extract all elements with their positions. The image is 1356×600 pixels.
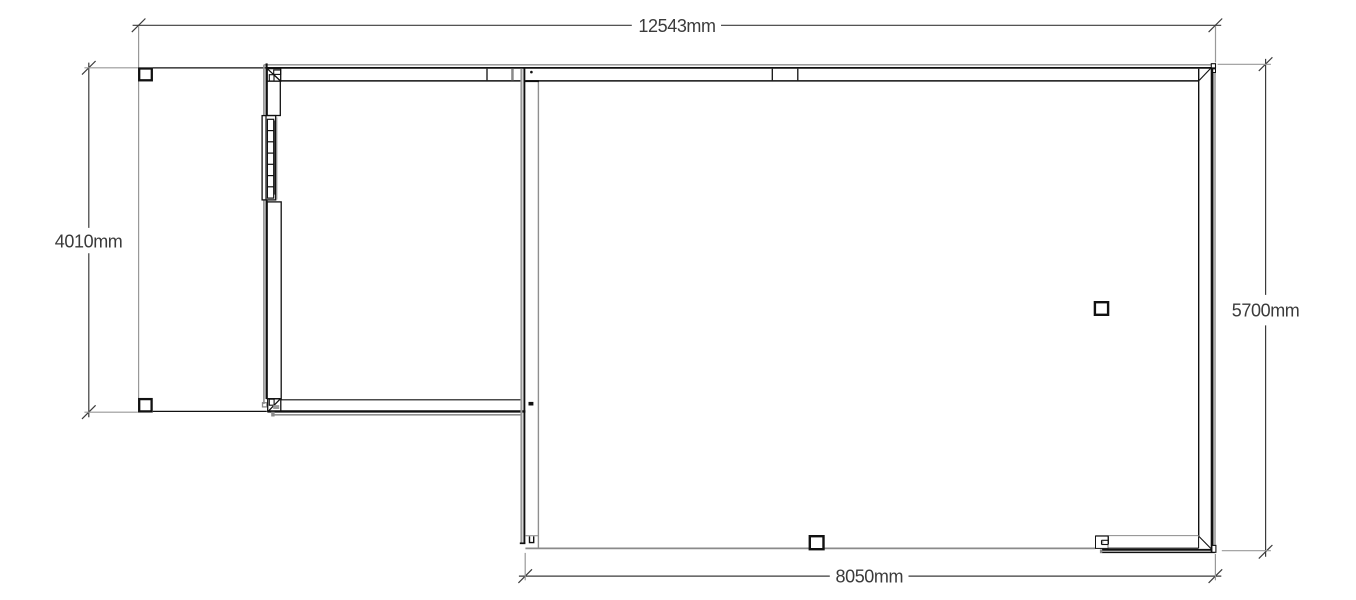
svg-text:8050mm: 8050mm bbox=[835, 567, 903, 587]
svg-text:4010mm: 4010mm bbox=[55, 231, 123, 251]
svg-text:12543mm: 12543mm bbox=[638, 16, 715, 36]
svg-text:5700mm: 5700mm bbox=[1232, 300, 1300, 320]
